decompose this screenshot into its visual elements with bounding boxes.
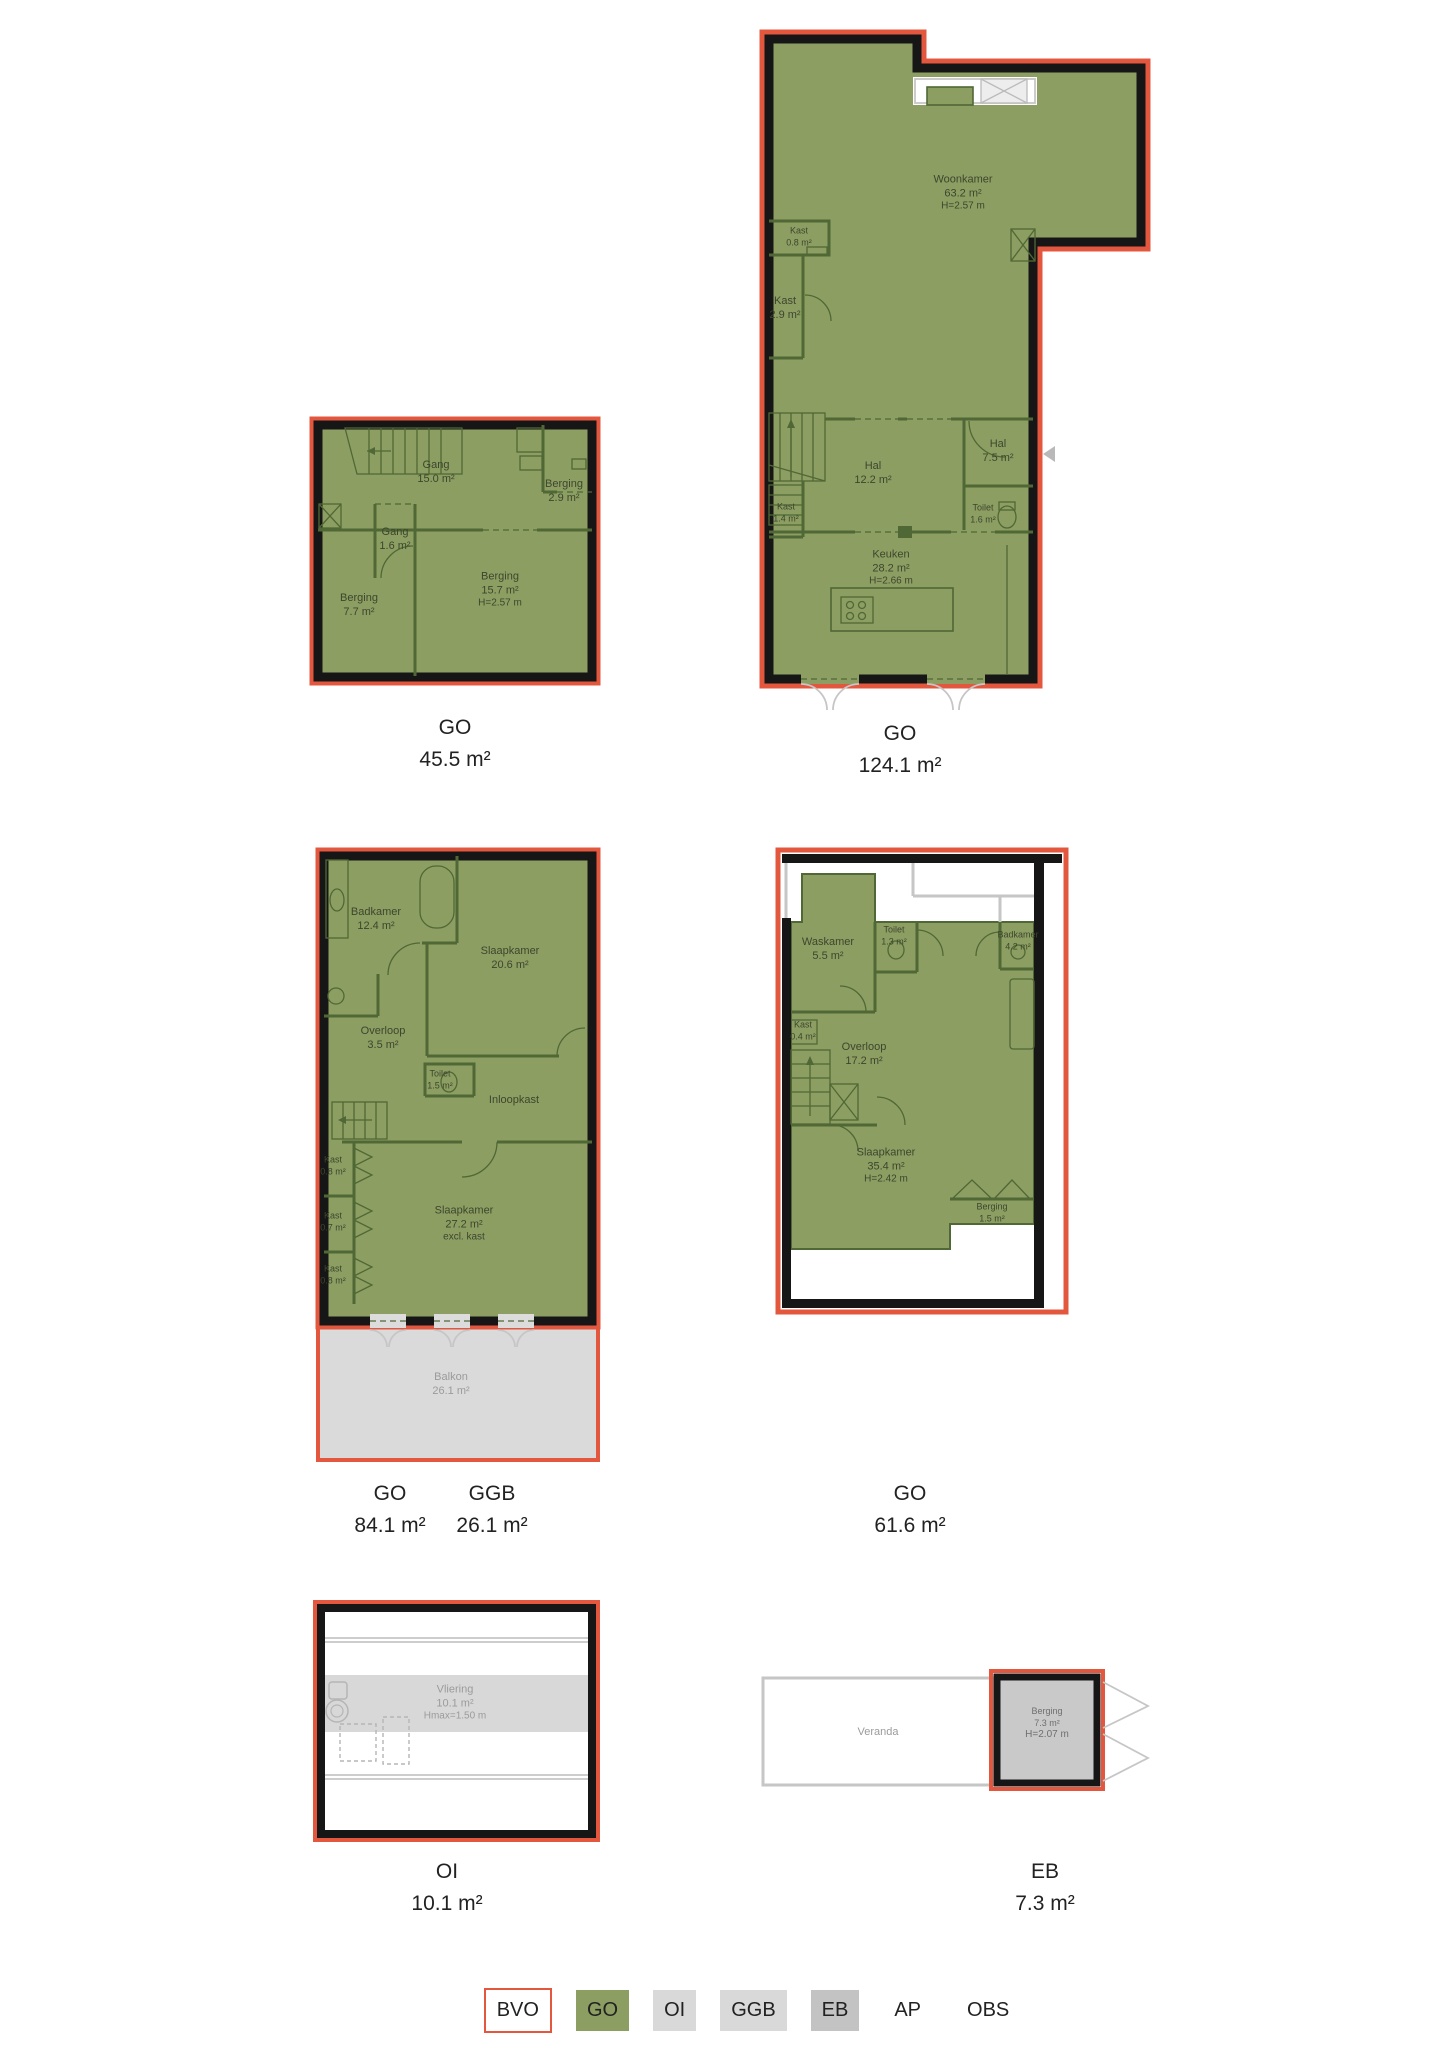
room-label-berging: Berging7.3 m² H=2.07 m xyxy=(1025,1706,1069,1742)
room-label-kast: Kast0.4 m² xyxy=(790,1019,816,1042)
room-label-keuken: Keuken28.2 m² H=2.66 m xyxy=(869,548,913,589)
floor-plan-6: Veranda Berging7.3 m² H=2.07 m xyxy=(758,1666,1158,1796)
room-label-badkamer: Badkamer12.4 m² xyxy=(351,905,401,933)
plan-1-caption: GO45.5 m² xyxy=(305,712,605,775)
room-label-kast: Kast0.8 m² xyxy=(320,1154,346,1177)
room-label-waskamer: Waskamer5.5 m² xyxy=(802,935,854,963)
room-label-inloopkast: Inloopkast xyxy=(489,1093,539,1107)
legend-item-obs: OBS xyxy=(956,1990,1020,2031)
floor-plan-2-drawing xyxy=(755,25,1155,725)
room-label-berging: Berging2.9 m² xyxy=(545,477,583,505)
room-label-gang: Gang1.6 m² xyxy=(379,525,410,553)
room-label-woonkamer: Woonkamer63.2 m² H=2.57 m xyxy=(933,173,992,214)
floor-plan-4-drawing xyxy=(772,844,1076,1328)
room-label-kast: Kast0.7 m² xyxy=(320,1210,346,1233)
room-label-kast: Kast0.8 m² xyxy=(320,1263,346,1286)
room-label-berging: Berging1.5 m² xyxy=(976,1201,1007,1224)
room-label-overloop: Overloop17.2 m² xyxy=(842,1040,887,1068)
room-label-toilet: Toilet1.6 m² xyxy=(970,502,996,525)
room-label-slaapkamer: Slaapkamer27.2 m² excl. kast xyxy=(435,1204,494,1245)
room-label-overloop: Overloop3.5 m² xyxy=(361,1024,406,1052)
room-label-kast: Kast0.8 m² xyxy=(786,225,812,248)
room-label-toilet: Toilet1.3 m² xyxy=(881,924,907,947)
room-label-gang: Gang15.0 m² xyxy=(417,458,454,486)
floor-plan-2: Woonkamer63.2 m² H=2.57 m Kast0.8 m² Kas… xyxy=(755,25,1155,725)
floor-plan-6-drawing xyxy=(758,1666,1158,1796)
room-label-toilet: Toilet1.5 m² xyxy=(427,1068,453,1091)
floor-plan-1-drawing xyxy=(305,412,605,692)
measurement-sheet: Gang15.0 m² Berging2.9 m² Gang1.6 m² Ber… xyxy=(0,0,1448,2048)
floor-plan-5: Vliering10.1 m² Hmax=1.50 m xyxy=(309,1596,604,1846)
room-label-slaapkamer: Slaapkamer35.4 m² H=2.42 m xyxy=(857,1146,916,1187)
floor-plan-3: Badkamer12.4 m² Slaapkamer20.6 m² Overlo… xyxy=(312,844,604,1470)
room-label-hal: Hal7.5 m² xyxy=(982,437,1013,465)
room-label-kast: Kast1.4 m² xyxy=(773,501,799,524)
room-label-balkon: Balkon26.1 m² xyxy=(432,1370,469,1398)
room-label-veranda: Veranda xyxy=(858,1725,899,1739)
legend-item-go: GO xyxy=(576,1990,629,2031)
room-label-slaapkamer: Slaapkamer20.6 m² xyxy=(481,944,540,972)
legend-item-eb: EB xyxy=(811,1990,860,2031)
legend-item-ggb: GGB xyxy=(720,1990,786,2031)
legend-item-ap: AP xyxy=(883,1990,932,2031)
plan-2-caption: GO124.1 m² xyxy=(755,718,1045,781)
floor-plan-1: Gang15.0 m² Berging2.9 m² Gang1.6 m² Ber… xyxy=(305,412,605,692)
plan-4-caption: GO61.6 m² xyxy=(760,1478,1060,1541)
plan-5-caption: OI10.1 m² xyxy=(297,1856,597,1919)
legend-item-oi: OI xyxy=(653,1990,696,2031)
room-label-berging: Berging15.7 m² H=2.57 m xyxy=(478,570,522,611)
room-label-hal: Hal12.2 m² xyxy=(854,459,891,487)
room-label-kast: Kast2.9 m² xyxy=(769,294,800,322)
room-label-berging: Berging7.7 m² xyxy=(340,591,378,619)
plan-3-caption-ggb: GGB26.1 m² xyxy=(432,1478,552,1541)
plan-6-caption: EB7.3 m² xyxy=(895,1856,1195,1919)
room-label-badkamer: Badkamer4.2 m² xyxy=(997,929,1038,952)
floor-plan-4: Waskamer5.5 m² Toilet1.3 m² Badkamer4.2 … xyxy=(772,844,1076,1328)
room-label-vliering: Vliering10.1 m² Hmax=1.50 m xyxy=(424,1683,487,1724)
legend: BVO GO OI GGB EB AP OBS xyxy=(28,1988,1448,2033)
legend-item-bvo: BVO xyxy=(484,1988,552,2033)
